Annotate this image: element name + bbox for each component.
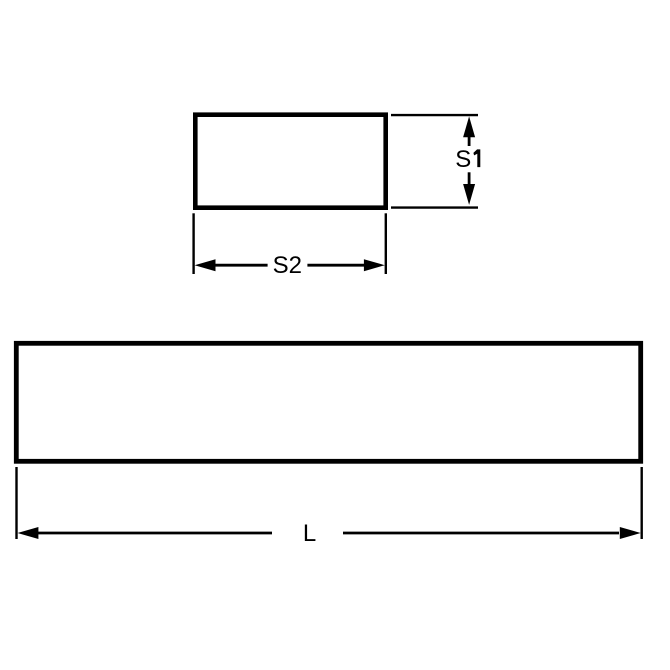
svg-text:S2: S2 <box>273 252 302 279</box>
svg-text:S: S <box>455 146 471 173</box>
svg-text:L: L <box>303 520 316 547</box>
